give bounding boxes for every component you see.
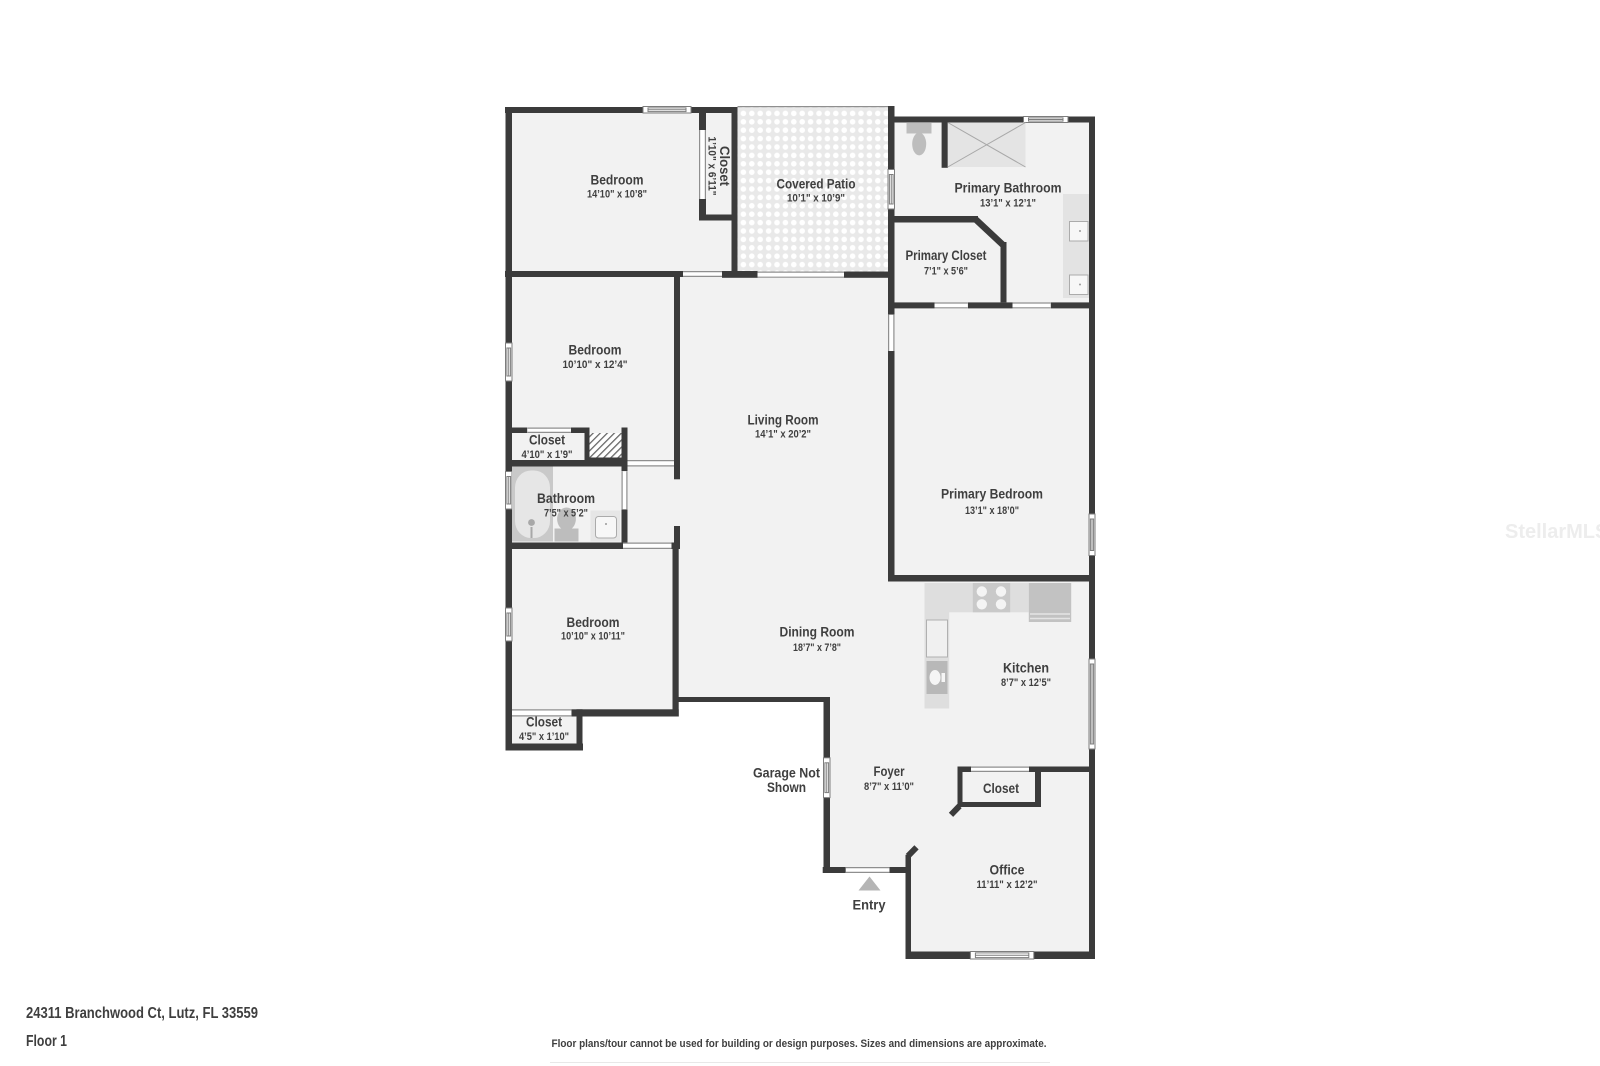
svg-text:Floor plans/tour cannot be use: Floor plans/tour cannot be used for buil… (552, 1038, 1047, 1050)
svg-text:Primary Bathroom: Primary Bathroom (955, 181, 1062, 196)
svg-text:Bedroom: Bedroom (569, 343, 622, 358)
svg-text:Living Room: Living Room (748, 413, 819, 428)
svg-text:Closet: Closet (717, 146, 732, 186)
svg-text:Entry: Entry (853, 898, 886, 913)
svg-text:1’10" x 6’11": 1’10" x 6’11" (706, 137, 718, 196)
svg-text:Closet: Closet (983, 781, 1019, 796)
svg-text:Kitchen: Kitchen (1003, 661, 1049, 676)
svg-text:14’10" x 10’8": 14’10" x 10’8" (587, 189, 647, 201)
svg-text:StellarMLS: StellarMLS (1505, 521, 1600, 543)
svg-text:Closet: Closet (529, 433, 565, 448)
svg-text:Office: Office (990, 863, 1025, 878)
svg-text:Primary Bedroom: Primary Bedroom (941, 487, 1043, 502)
svg-text:13’1" x 18’0": 13’1" x 18’0" (965, 505, 1019, 517)
svg-text:4’10" x 1’9": 4’10" x 1’9" (522, 449, 573, 461)
svg-text:18’7" x 7’8": 18’7" x 7’8" (793, 642, 841, 654)
svg-text:Dining Room: Dining Room (780, 625, 855, 640)
svg-text:14’1" x 20’2": 14’1" x 20’2" (755, 429, 811, 441)
svg-text:Shown: Shown (767, 780, 806, 795)
svg-text:24311 Branchwood Ct, Lutz, FL: 24311 Branchwood Ct, Lutz, FL 33559 (26, 1005, 258, 1022)
svg-text:Floor 1: Floor 1 (26, 1033, 67, 1050)
svg-text:10’10" x 12’4": 10’10" x 12’4" (563, 359, 628, 371)
svg-text:Bedroom: Bedroom (591, 173, 644, 188)
svg-text:Bedroom: Bedroom (567, 615, 620, 630)
svg-text:7’5" x 5’2": 7’5" x 5’2" (544, 508, 588, 520)
svg-text:Bathroom: Bathroom (537, 491, 595, 506)
svg-text:Primary Closet: Primary Closet (906, 248, 987, 263)
svg-text:Garage Not: Garage Not (753, 766, 820, 781)
svg-text:8’7" x 11’0": 8’7" x 11’0" (864, 781, 914, 793)
svg-text:13’1" x 12’1": 13’1" x 12’1" (980, 198, 1036, 210)
svg-text:Closet: Closet (526, 715, 562, 730)
svg-text:11’11" x 12’2": 11’11" x 12’2" (977, 879, 1038, 891)
svg-text:10’1" x 10’9": 10’1" x 10’9" (787, 193, 845, 205)
svg-text:Foyer: Foyer (874, 764, 906, 779)
svg-text:10’10" x 10’11": 10’10" x 10’11" (561, 631, 625, 643)
svg-text:7’1" x 5’6": 7’1" x 5’6" (924, 266, 968, 278)
svg-text:4’5" x 1’10": 4’5" x 1’10" (519, 731, 569, 743)
svg-text:Covered Patio: Covered Patio (777, 177, 856, 192)
svg-text:8’7" x 12’5": 8’7" x 12’5" (1001, 677, 1051, 689)
